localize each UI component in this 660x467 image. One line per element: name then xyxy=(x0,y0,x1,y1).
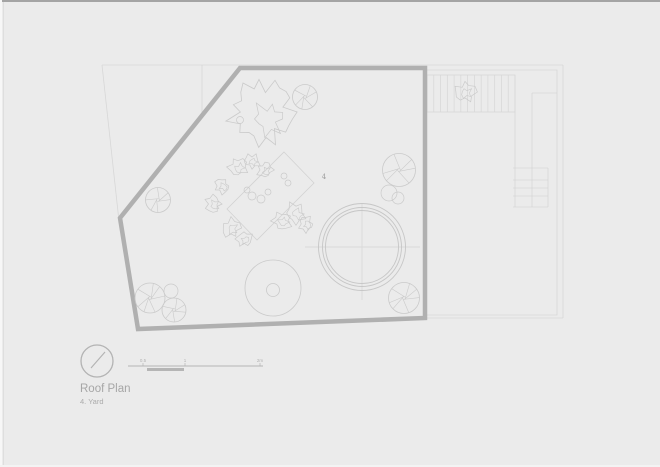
scale-label-1: 1 xyxy=(184,358,187,363)
scale-bar-segment xyxy=(147,368,184,371)
scale-label-2m: 2m xyxy=(257,358,264,363)
yard-boundary-layer xyxy=(120,68,425,329)
scale-label-05: 0.5 xyxy=(140,358,147,363)
area-number-label: 4 xyxy=(322,173,327,181)
stairs-layer xyxy=(427,75,548,207)
roof-plan-viewer: 4 0.5 1 2m Roof Plan 4. Yard xyxy=(0,0,660,467)
yard-boundary-wall xyxy=(120,68,425,329)
scale-bar xyxy=(128,363,263,371)
plan-title: Roof Plan xyxy=(80,383,131,395)
lot-line-left xyxy=(102,65,119,221)
roof-plan-drawing: 4 0.5 1 2m Roof Plan 4. Yard xyxy=(0,0,660,467)
neighbor-roof-outline xyxy=(427,70,557,315)
north-arrow-icon xyxy=(81,345,113,377)
shrub-symbol-inner xyxy=(462,89,472,99)
title-block: 0.5 1 2m Roof Plan 4. Yard xyxy=(80,345,263,406)
plan-subtitle: 4. Yard xyxy=(80,397,104,406)
north-arrow-needle xyxy=(91,352,105,368)
